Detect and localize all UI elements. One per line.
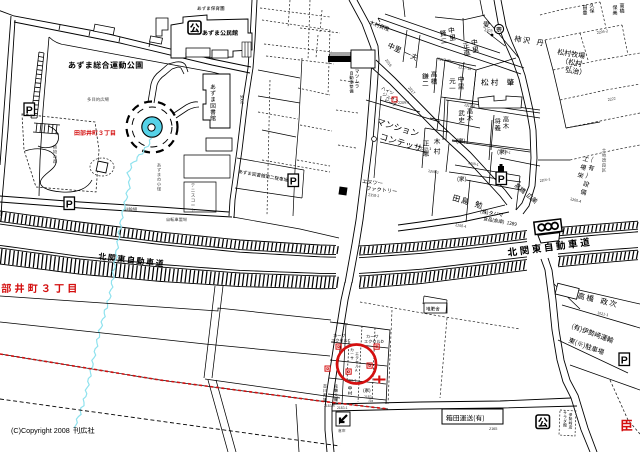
svg-text:(C)Copyright 2008: (C)Copyright 2008 xyxy=(11,426,70,435)
svg-text:P: P xyxy=(290,176,297,188)
svg-text:P: P xyxy=(498,174,505,186)
svg-text:3002: 3002 xyxy=(239,95,245,105)
svg-text:P: P xyxy=(621,355,628,367)
svg-text:P: P xyxy=(66,199,73,211)
